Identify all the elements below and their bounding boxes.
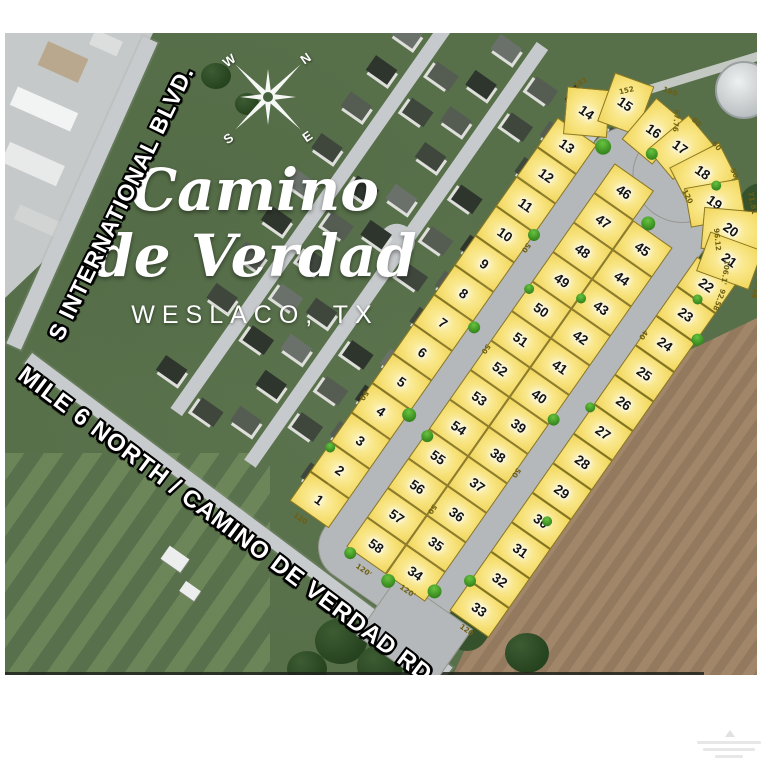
lot-number: 26 [613,392,634,413]
lot-number: 31 [510,540,531,561]
lot-number: 33 [469,599,490,620]
lot-number: 44 [612,268,633,289]
lot-number: 35 [426,533,447,554]
tree [505,633,549,673]
lot-number: 54 [448,417,469,438]
title-line2: de Verdad [85,227,425,285]
lot-number: 48 [572,240,593,261]
lot-number: 29 [551,481,572,502]
lot-number: 51 [510,329,531,350]
aerial-photo: 1312111098765432146474849505152535455565… [5,33,757,675]
house [281,334,313,364]
lot-number: 3 [353,432,368,449]
lot-number: 46 [614,181,635,202]
house [317,376,349,406]
watermark [693,730,765,768]
title-location: WESLACO, TX [85,301,425,330]
house [527,76,559,106]
lot-number: 38 [488,445,509,466]
lot-number: 11 [516,195,536,215]
pasture-field [5,453,270,675]
dimension-label: 120 [292,512,309,527]
lot-number: 56 [407,476,428,497]
lot-number: 17 [670,137,691,158]
lot-number: 9 [477,255,492,272]
lot-number: 47 [593,211,614,232]
lot-number: 52 [490,358,511,379]
house [490,34,522,64]
lot-number: 2 [333,462,348,479]
dimension-label: 180 [661,86,678,99]
house [340,91,372,121]
lot-number: 18 [693,162,714,183]
house [342,340,374,370]
lot-number: 4 [374,403,389,420]
lot-number: 6 [415,344,430,361]
house [255,370,287,400]
lot-number: 10 [495,224,516,245]
watermark-emblem-icon [725,730,735,737]
house [422,226,454,256]
lot-number: 36 [446,504,467,525]
lot-number: 49 [552,270,573,291]
lot-number: 42 [570,327,591,348]
lot-number: 58 [366,535,387,556]
lot-number: 45 [632,238,653,259]
house [440,106,472,136]
lot-number: 43 [591,297,612,318]
lot-number: 27 [593,422,614,443]
lot-number: 8 [456,285,471,302]
house [292,412,324,442]
house [402,98,434,128]
lot-number: 57 [386,506,407,527]
lot-number: 5 [395,373,410,390]
lot-number: 14 [577,102,598,123]
lot-number: 55 [428,447,449,468]
lot-number: 53 [469,388,490,409]
house [451,184,483,214]
lot-number: 7 [436,314,451,331]
listing-image-page: 1312111098765432146474849505152535455565… [0,0,768,768]
house [501,112,533,142]
lot-number: 41 [550,356,571,377]
lot-number: 13 [557,135,578,156]
house [192,397,224,427]
lot-number: 24 [655,333,676,354]
lot-number: 28 [572,451,593,472]
house [427,62,459,92]
lot-number: 40 [529,386,550,407]
lot-number: 39 [508,415,529,436]
house [391,33,423,49]
lot-number: 37 [467,474,488,495]
house [156,355,188,385]
lot-number: 50 [531,299,552,320]
lot-number: 23 [675,304,696,325]
house [465,70,497,100]
lot-number: 12 [536,165,557,186]
lot-number: 15 [615,93,636,114]
photo-bottom-edge [5,672,704,675]
lot-number: 25 [634,363,655,384]
lot-number: 32 [490,569,511,590]
house [230,406,262,436]
house [366,55,398,85]
lot-number: 1 [312,491,327,508]
lot-number: 34 [405,563,426,584]
